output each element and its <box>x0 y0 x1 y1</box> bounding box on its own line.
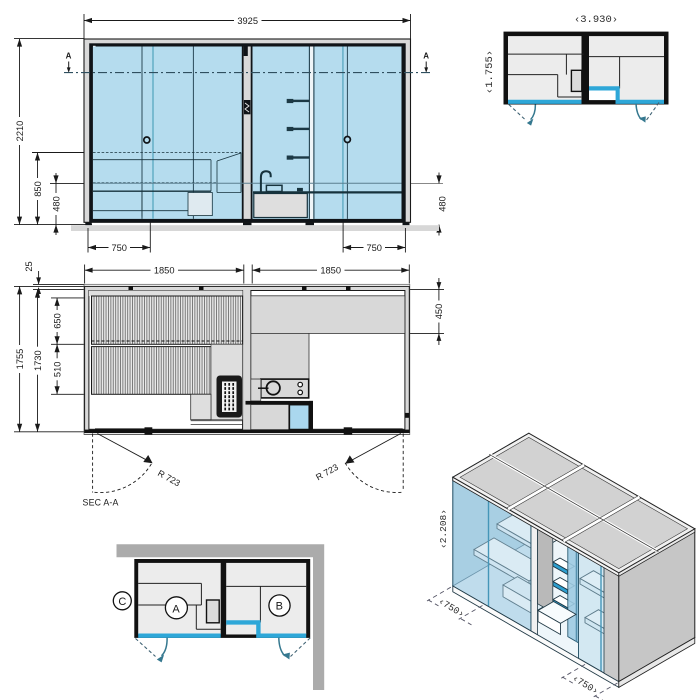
svg-text:480: 480 <box>438 196 448 212</box>
svg-text:25: 25 <box>24 261 34 271</box>
svg-text:3925: 3925 <box>237 16 258 26</box>
svg-text:‹2.208›: ‹2.208› <box>438 509 449 549</box>
svg-text:A: A <box>423 52 429 61</box>
svg-text:A: A <box>172 603 180 615</box>
svg-text:750: 750 <box>366 243 382 253</box>
svg-text:1730: 1730 <box>33 350 43 371</box>
svg-text:750: 750 <box>111 243 127 253</box>
svg-text:450: 450 <box>434 304 444 320</box>
svg-text:1850: 1850 <box>320 266 341 276</box>
svg-text:2210: 2210 <box>15 121 25 142</box>
svg-text:A: A <box>66 52 72 61</box>
svg-text:510: 510 <box>52 362 62 378</box>
svg-text:C: C <box>118 596 126 608</box>
svg-text:850: 850 <box>33 181 43 197</box>
svg-text:B: B <box>276 601 283 613</box>
svg-text:SEC A-A: SEC A-A <box>83 498 119 508</box>
svg-text:650: 650 <box>52 313 62 329</box>
svg-text:1755: 1755 <box>15 349 25 370</box>
svg-text:‹1.755›: ‹1.755› <box>484 50 496 94</box>
svg-text:1850: 1850 <box>154 266 175 276</box>
svg-text:‹3.930›: ‹3.930› <box>574 14 618 26</box>
svg-text:480: 480 <box>51 196 61 212</box>
